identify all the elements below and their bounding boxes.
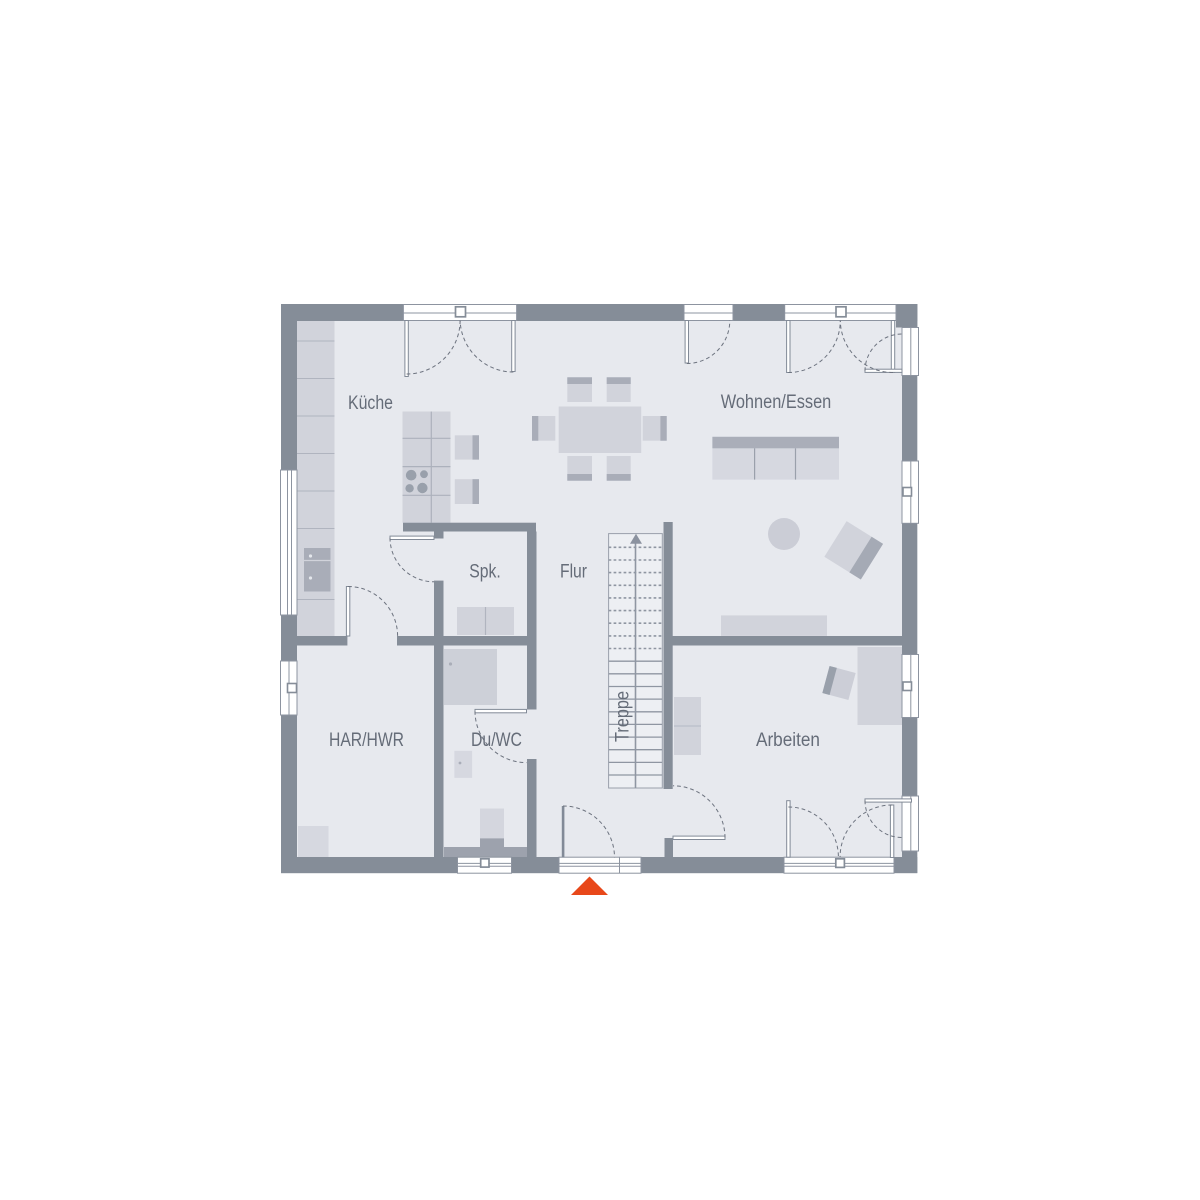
svg-text:Wohnen/Essen: Wohnen/Essen <box>721 391 832 413</box>
svg-text:HAR/HWR: HAR/HWR <box>329 729 404 751</box>
svg-text:Treppe: Treppe <box>612 691 634 742</box>
svg-text:Küche: Küche <box>348 392 393 414</box>
svg-text:Flur: Flur <box>560 561 587 583</box>
svg-text:Du/WC: Du/WC <box>471 729 522 751</box>
svg-text:Arbeiten: Arbeiten <box>756 729 820 751</box>
svg-text:Spk.: Spk. <box>469 561 501 583</box>
